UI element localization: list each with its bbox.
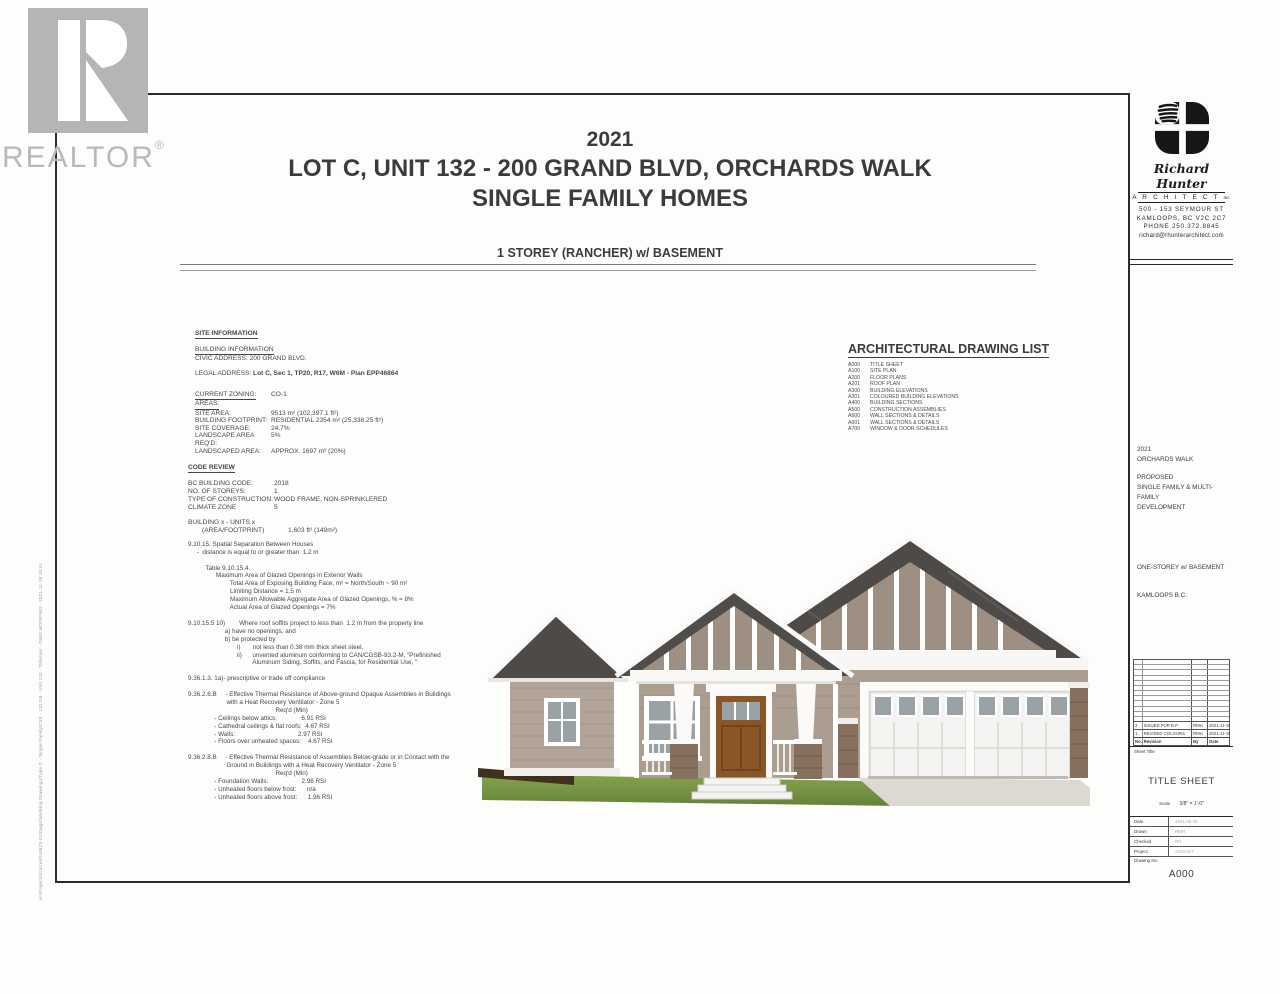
area-row: LANDSCAPED AREA: APPROX. 1697 m² (20%) bbox=[195, 448, 535, 456]
realtor-wordmark: REALTOR® bbox=[2, 138, 166, 175]
title-sheet-page: REALTOR® 2021 LOT C, UNIT 132 - 200 GRAN… bbox=[0, 0, 1280, 994]
double-rule bbox=[180, 264, 1036, 271]
drawing-list-item: A700 WINDOW & DOOR SCHEDULES bbox=[848, 426, 1103, 432]
revision-table: 2 ISSUED FOR B.P. RMH 2021-11-18 1 REVIS… bbox=[1133, 659, 1230, 746]
drawing-number-block: Drawing No. A000 bbox=[1130, 856, 1233, 883]
legal-address: LEGAL ADDRESS: Lot C, Sec 1, TP20, R17, … bbox=[195, 370, 535, 378]
garage-door-left bbox=[870, 692, 966, 778]
garage-door bbox=[860, 682, 1076, 779]
drawing-list-items: A000 TITLE SHEET A100 SITE PLAN A200 FLO… bbox=[848, 362, 1103, 432]
drawing-no: A000 bbox=[1130, 869, 1233, 880]
area-row: LANDSCAPE AREA REQ'D: 5% bbox=[195, 432, 535, 447]
title-address: LOT C, UNIT 132 - 200 GRAND BLVD, ORCHAR… bbox=[180, 155, 1040, 183]
left-wing bbox=[488, 614, 628, 776]
architect-email: richard@rhunterarchitect.com bbox=[1130, 232, 1233, 241]
registered-mark: ® bbox=[155, 138, 166, 152]
divider bbox=[1138, 202, 1225, 203]
project-year: 2021 bbox=[1137, 445, 1226, 455]
project-name: ORCHARDS WALK bbox=[1137, 455, 1226, 465]
realtor-logo-box bbox=[28, 8, 148, 133]
drawing-list-heading: ARCHITECTURAL DRAWING LIST bbox=[848, 342, 1049, 358]
architect-block: Richard Hunter A R C H I T E C T Inc. 50… bbox=[1130, 93, 1233, 259]
house-rendering bbox=[478, 526, 1090, 806]
plot-stamp: H:\Projects\Current\10623-01\Dwgs\Workin… bbox=[38, 555, 50, 900]
realtor-r-icon bbox=[28, 8, 148, 133]
code-review-row: NO. OF STOREYS: 1 bbox=[188, 488, 533, 496]
architect-signature: Richard Hunter bbox=[1130, 161, 1233, 191]
divider bbox=[1138, 192, 1225, 193]
code-review-row: TYPE OF CONSTRUCTION: WOOD FRAME, NON-SP… bbox=[188, 496, 533, 504]
subtitle: 1 STOREY (RANCHER) w/ BASEMENT bbox=[180, 246, 1040, 260]
code-review-row: CLIMATE ZONE 5 bbox=[188, 504, 533, 512]
area-row: SITE AREA: 9513 m² (102,397.1 ft²) bbox=[195, 410, 535, 418]
area-row: SITE COVERAGE: 24.7% bbox=[195, 425, 535, 433]
sheet-title-label: Sheet Title bbox=[1134, 749, 1233, 754]
building-info-heading: BUILDING INFORMATION bbox=[195, 346, 274, 355]
architectural-drawing-list: ARCHITECTURAL DRAWING LIST A000 TITLE SH… bbox=[848, 340, 1103, 432]
site-information: SITE INFORMATION BUILDING INFORMATION CI… bbox=[195, 330, 535, 455]
title-block-field: Checked RH bbox=[1130, 837, 1233, 847]
architect-logo bbox=[1130, 101, 1233, 160]
porch-steps bbox=[692, 778, 792, 799]
left-wing-roof bbox=[488, 614, 628, 680]
corner-stone-pier bbox=[1068, 682, 1090, 778]
areas-rows: SITE AREA: 9513 m² (102,397.1 ft²) BUILD… bbox=[195, 410, 535, 456]
title-block-field: Date 2021-02-26 bbox=[1130, 817, 1233, 827]
scale-row: Scale 3/8" = 1'-0" bbox=[1130, 801, 1233, 807]
architect-address: 500 - 153 SEYMOUR ST KAMLOOPS, BC V2C 2C… bbox=[1130, 206, 1233, 240]
code-review-heading: CODE REVIEW bbox=[188, 464, 235, 473]
zoning-row: CURRENT ZONING: CO-1 bbox=[195, 391, 535, 400]
site-info-heading: SITE INFORMATION bbox=[195, 330, 258, 339]
architect-logo-icon bbox=[1153, 101, 1211, 155]
drawing-no-label: Drawing No. bbox=[1134, 858, 1233, 863]
front-door bbox=[706, 684, 776, 778]
realtor-watermark: REALTOR® bbox=[0, 0, 180, 185]
revision-empty-rows bbox=[1134, 660, 1229, 721]
revision-header-row: No. Revision By Date bbox=[1134, 737, 1229, 745]
architect-caps: A R C H I T E C T Inc. bbox=[1130, 194, 1233, 201]
areas-heading: AREAS: bbox=[195, 400, 219, 409]
civic-address: CIVIC ADDRESS: 200 GRAND BLVD. bbox=[195, 355, 535, 363]
revision-rows: 2 ISSUED FOR B.P. RMH 2021-11-18 1 REVIS… bbox=[1134, 721, 1229, 737]
code-review-rows: BC BUILDING CODE: 2018 NO. OF STOREYS: 1… bbox=[188, 480, 533, 512]
sheet-titles: 2021 LOT C, UNIT 132 - 200 GRAND BLVD, O… bbox=[180, 128, 1040, 213]
revision-row: 1 REVISED COLOURS RMH 2021-11-18 bbox=[1134, 729, 1229, 737]
title-block-field: Drawn RMH bbox=[1130, 827, 1233, 837]
code-review-row: BC BUILDING CODE: 2018 bbox=[188, 480, 533, 488]
garage-door-right bbox=[974, 692, 1070, 778]
sheet-title-block: Sheet Title TITLE SHEET Scale 3/8" = 1'-… bbox=[1130, 746, 1233, 816]
title-block-fields: Date 2021-02-26 Drawn RMH Checked RH Pro… bbox=[1130, 816, 1233, 857]
revision-row: 2 ISSUED FOR B.P. RMH 2021-11-18 bbox=[1134, 721, 1229, 729]
title-block-sidebar: Richard Hunter A R C H I T E C T Inc. 50… bbox=[1128, 93, 1233, 883]
project-info: 2021 ORCHARDS WALK PROPOSED SINGLE FAMIL… bbox=[1130, 263, 1233, 658]
left-wing-window bbox=[544, 698, 580, 746]
area-row: BUILDING FOOTPRINT: RESIDENTIAL 2354 m² … bbox=[195, 417, 535, 425]
title-type: SINGLE FAMILY HOMES bbox=[180, 185, 1040, 213]
sheet-title: TITLE SHEET bbox=[1130, 776, 1233, 787]
title-year: 2021 bbox=[180, 128, 1040, 152]
